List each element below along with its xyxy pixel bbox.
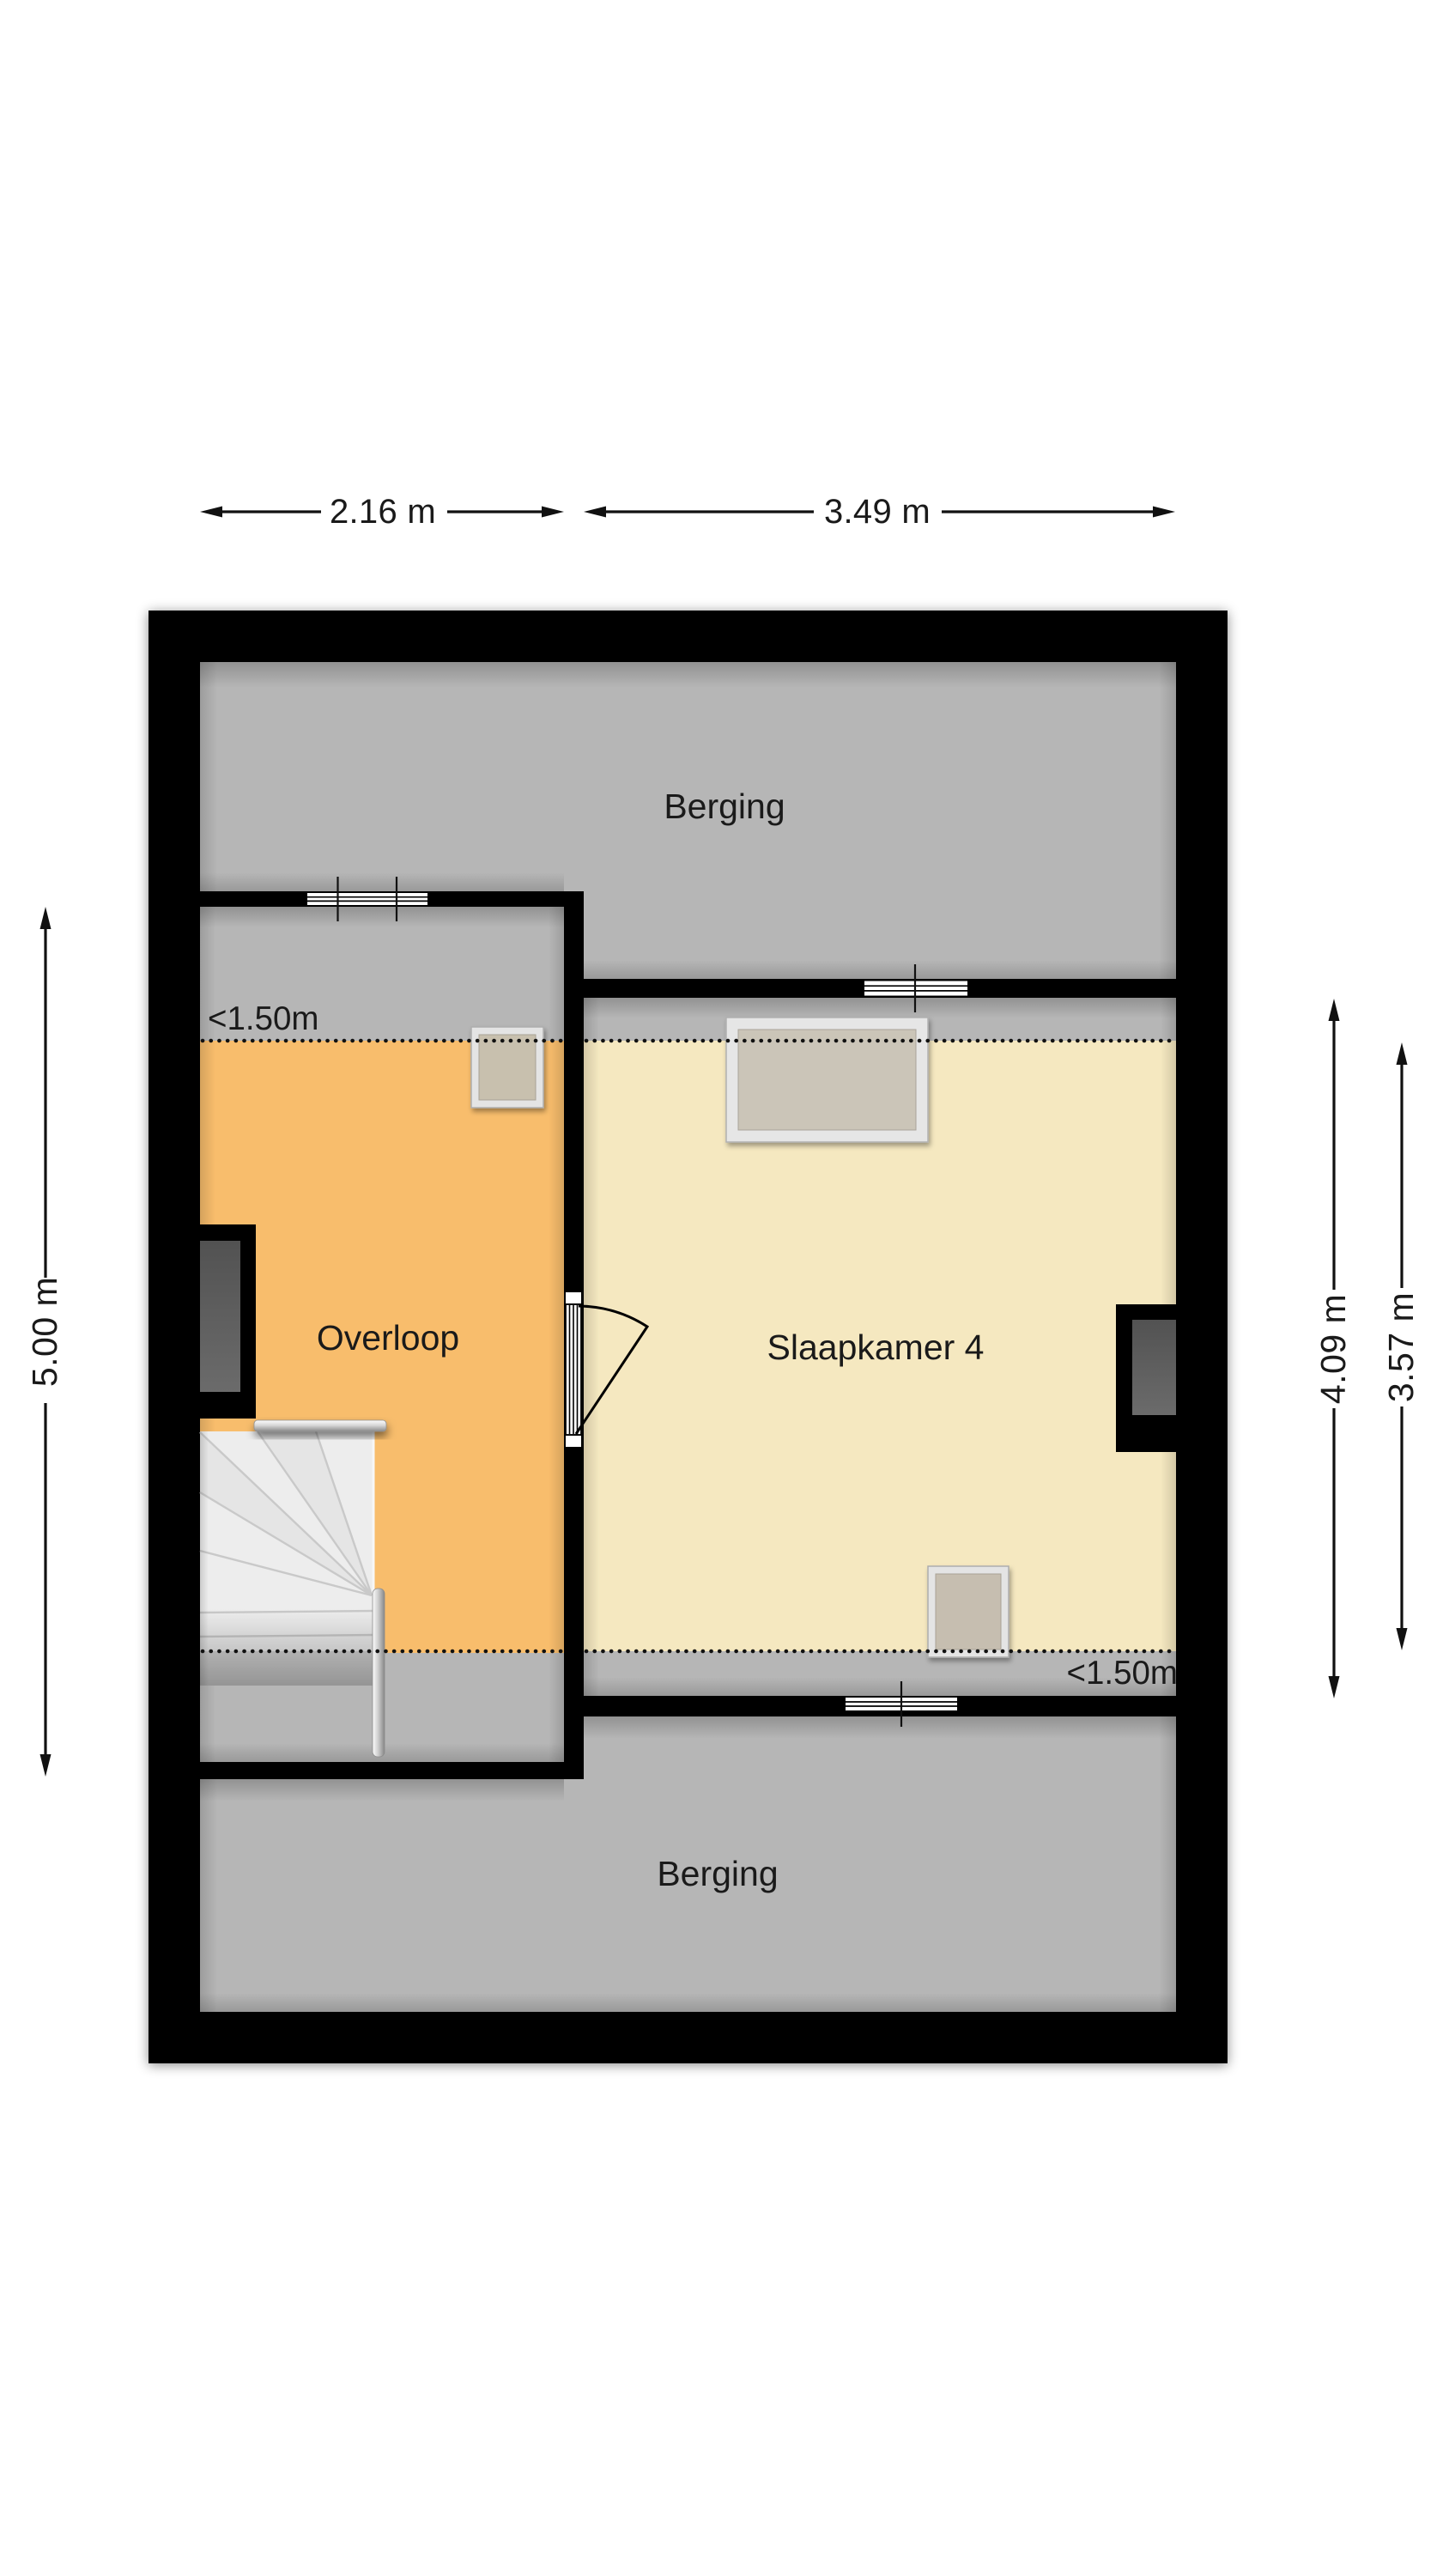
svg-text:<1.50m: <1.50m xyxy=(1067,1655,1179,1692)
svg-text:5.00 m: 5.00 m xyxy=(25,1277,64,1387)
svg-text:3.49 m: 3.49 m xyxy=(824,493,931,531)
svg-text:3.57 m: 3.57 m xyxy=(1381,1292,1421,1402)
svg-text:Berging: Berging xyxy=(657,1854,778,1893)
svg-text:Berging: Berging xyxy=(664,787,785,826)
svg-text:4.09 m: 4.09 m xyxy=(1313,1294,1353,1404)
svg-text:Overloop: Overloop xyxy=(317,1318,459,1358)
svg-text:<1.50m: <1.50m xyxy=(208,1000,319,1037)
svg-text:Slaapkamer 4: Slaapkamer 4 xyxy=(767,1327,985,1367)
svg-text:2.16 m: 2.16 m xyxy=(330,493,436,531)
